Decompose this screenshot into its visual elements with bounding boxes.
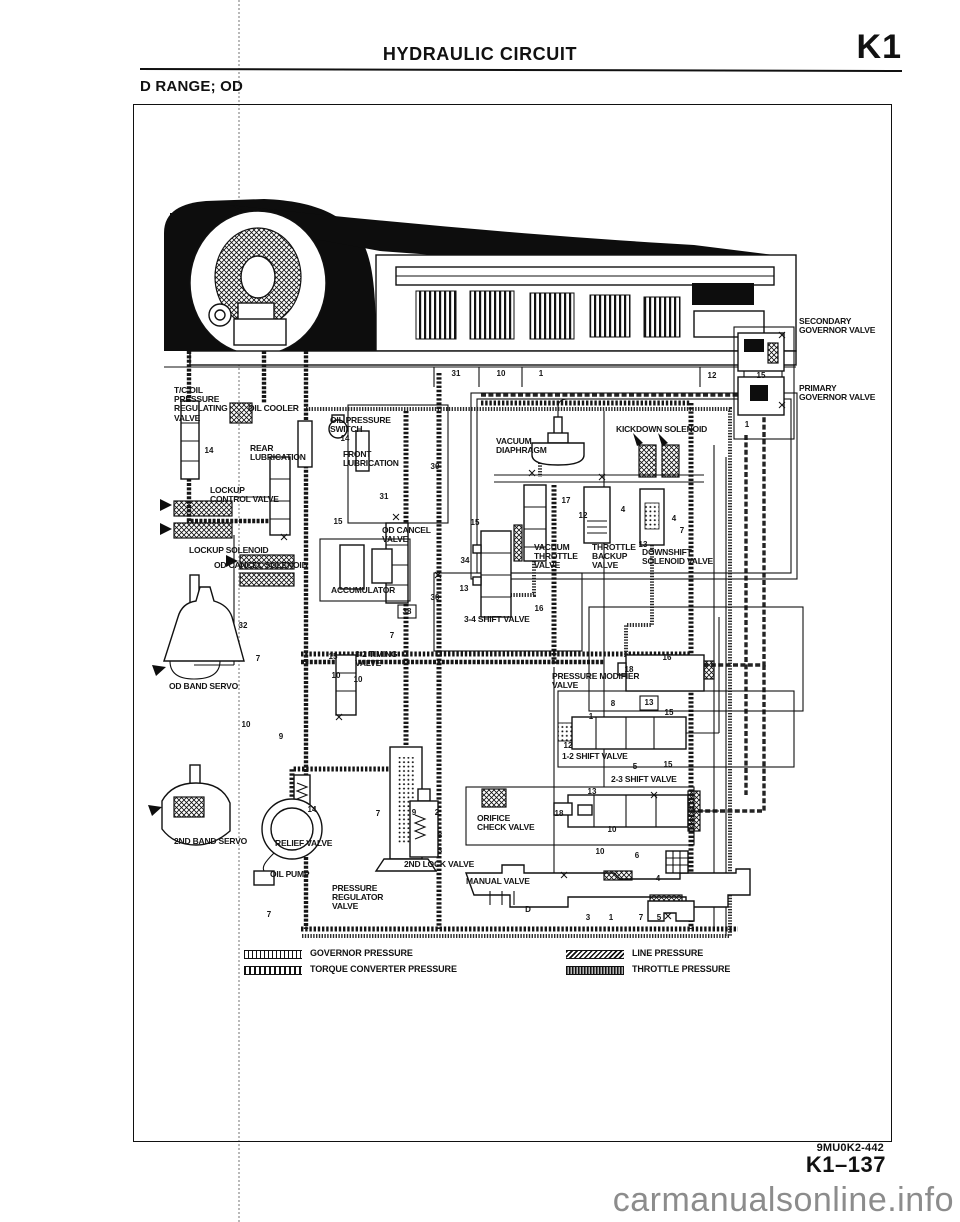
diagram-label: MANUAL VALVE — [466, 877, 530, 886]
pipe-number: 3 — [438, 846, 442, 855]
range-subtitle: D RANGE; OD — [140, 78, 243, 95]
diagram-label: VACUUM THROTTLE VALVE — [534, 543, 578, 571]
pipe-number: 16 — [535, 604, 544, 613]
legend-line-pressure: LINE PRESSURE — [632, 948, 703, 958]
pipe-number: 14 — [205, 446, 214, 455]
governor-pressure-swatch — [244, 950, 302, 959]
pipe-number: 3 — [586, 913, 590, 922]
hydraulic-circuit-diagram: T/C OIL PRESSURE REGULATING VALVEOIL COO… — [133, 104, 892, 1142]
diagram-label: OIL PRESSURE SWITCH — [330, 416, 391, 434]
pipe-number: 8 — [611, 699, 615, 708]
section-code: K1 — [857, 28, 902, 67]
pipe-number: 1 — [609, 913, 613, 922]
diagram-overlay: T/C OIL PRESSURE REGULATING VALVEOIL COO… — [134, 105, 891, 1141]
diagram-label: 1-2 SHIFT VALVE — [562, 752, 628, 761]
pipe-number: 9 — [412, 808, 416, 817]
pipe-number: 31 — [452, 369, 461, 378]
pipe-number: 7 — [680, 526, 684, 535]
pipe-number: 12 — [564, 741, 573, 750]
pipe-number: 7 — [639, 913, 643, 922]
diagram-label: ORIFICE CHECK VALVE — [477, 814, 534, 832]
diagram-label: THROTTLE BACKUP VALVE — [592, 543, 636, 571]
pipe-number: 12 — [579, 511, 588, 520]
diagram-label: REAR LUBRICATION — [250, 444, 306, 462]
diagram-label: 2ND LOCK VALVE — [404, 860, 474, 869]
pipe-number: 13 — [588, 787, 597, 796]
diagram-label: OD CANCEL SOLENOID — [214, 561, 308, 570]
pipe-number: 10 — [497, 369, 506, 378]
pipe-number: 14 — [308, 805, 317, 814]
pipe-number: 13 — [460, 584, 469, 593]
pipe-number: 18 — [555, 809, 564, 818]
pipe-number: 5 — [657, 913, 661, 922]
diagram-label: PRESSURE REGULATOR VALVE — [332, 884, 383, 912]
diagram-label: PRESSURE MODIFIER VALVE — [552, 672, 639, 690]
diagram-label: DOWNSHIFT SOLENOID VALVE — [642, 548, 713, 566]
pipe-number: 2 — [435, 808, 439, 817]
diagram-label: 3-4 SHIFT VALVE — [464, 615, 530, 624]
diagram-label: KICKDOWN SOLENOID — [616, 425, 707, 434]
pipe-number: 6 — [635, 851, 639, 860]
pipe-number: 1 — [539, 369, 543, 378]
pipe-number: 31 — [380, 492, 389, 501]
pipe-number: 15 — [334, 517, 343, 526]
page-title: HYDRAULIC CIRCUIT — [0, 44, 960, 65]
pipe-number: 4 — [621, 505, 625, 514]
diagram-label: OIL COOLER — [248, 404, 299, 413]
pipe-number: 10 — [332, 671, 341, 680]
diagram-label: OD CANCEL VALVE — [382, 526, 431, 544]
pipe-number: 15 — [665, 708, 674, 717]
pipe-number: 4 — [656, 874, 660, 883]
diagram-label: 3-2 TIMING VALVE — [355, 650, 397, 668]
line-pressure-swatch — [566, 950, 624, 959]
pipe-number: 12 — [708, 371, 717, 380]
diagram-label: LOCKUP CONTROL VALVE — [210, 486, 279, 504]
diagram-label: ACCUMULATOR — [331, 586, 395, 595]
pipe-number: 10 — [596, 847, 605, 856]
legend-governor-pressure: GOVERNOR PRESSURE — [310, 948, 413, 958]
pipe-number: 4 — [672, 514, 676, 523]
pipe-number: 16 — [663, 653, 672, 662]
pipe-number: 10 — [608, 825, 617, 834]
pipe-number: 8 — [438, 831, 442, 840]
diagram-label: PRIMARY GOVERNOR VALVE — [799, 384, 875, 402]
legend-row-2: TORQUE CONVERTER PRESSURE THROTTLE PRESS… — [244, 964, 804, 976]
pipe-number: 30 — [431, 593, 440, 602]
torque-converter-pressure-swatch — [244, 966, 302, 975]
pipe-number: 14 — [341, 434, 350, 443]
diagram-label: T/C OIL PRESSURE REGULATING VALVE — [174, 386, 228, 423]
diagram-label: OD BAND SERVO — [169, 682, 238, 691]
pipe-number: 10 — [242, 720, 251, 729]
diagram-label: RELIEF VALVE — [275, 839, 332, 848]
diagram-label: LOCKUP SOLENOID — [189, 546, 269, 555]
pipe-number: 10 — [354, 675, 363, 684]
pipe-number: 30 — [431, 462, 440, 471]
pipe-number: 7 — [267, 910, 271, 919]
pipe-number: 15 — [329, 652, 338, 661]
diagram-label: VACUUM DIAPHRAGM — [496, 437, 547, 455]
pipe-number: 9 — [279, 732, 283, 741]
diagram-label: OIL PUMP — [270, 870, 309, 879]
pipe-number: D — [525, 905, 531, 914]
pipe-number: 15 — [664, 760, 673, 769]
pipe-number: 17 — [562, 496, 571, 505]
pipe-number: 1 — [745, 420, 749, 429]
pipe-number: 13 — [639, 540, 648, 549]
pipe-number: 7 — [256, 654, 260, 663]
pipe-number: 1 — [589, 712, 593, 721]
pipe-number: 18 — [625, 665, 634, 674]
diagram-label: 2-3 SHIFT VALVE — [611, 775, 677, 784]
manual-page: HYDRAULIC CIRCUIT K1 D RANGE; OD — [0, 0, 960, 1222]
diagram-label: 2ND BAND SERVO — [174, 837, 247, 846]
legend-torque-converter-pressure: TORQUE CONVERTER PRESSURE — [310, 964, 457, 974]
diagram-label: FRONT LUBRICATION — [343, 450, 399, 468]
legend-throttle-pressure: THROTTLE PRESSURE — [632, 964, 730, 974]
pipe-number: 7 — [376, 809, 380, 818]
throttle-pressure-swatch — [566, 966, 624, 975]
diagram-label: SECONDARY GOVERNOR VALVE — [799, 317, 875, 335]
pipe-number: 13 — [645, 698, 654, 707]
pipe-number: 32 — [239, 621, 248, 630]
pipe-number: 15 — [757, 371, 766, 380]
legend-row-1: GOVERNOR PRESSURE LINE PRESSURE — [244, 948, 804, 960]
watermark-text: carmanualsonline.info — [613, 1181, 954, 1220]
pipe-number: 7 — [390, 631, 394, 640]
header-rule — [140, 68, 902, 72]
pipe-number: 15 — [471, 518, 480, 527]
pipe-number: 38 — [403, 607, 412, 616]
page-number-code: K1–137 — [806, 1152, 886, 1178]
pipe-number: 5 — [633, 762, 637, 771]
pipe-number: 34 — [461, 556, 470, 565]
